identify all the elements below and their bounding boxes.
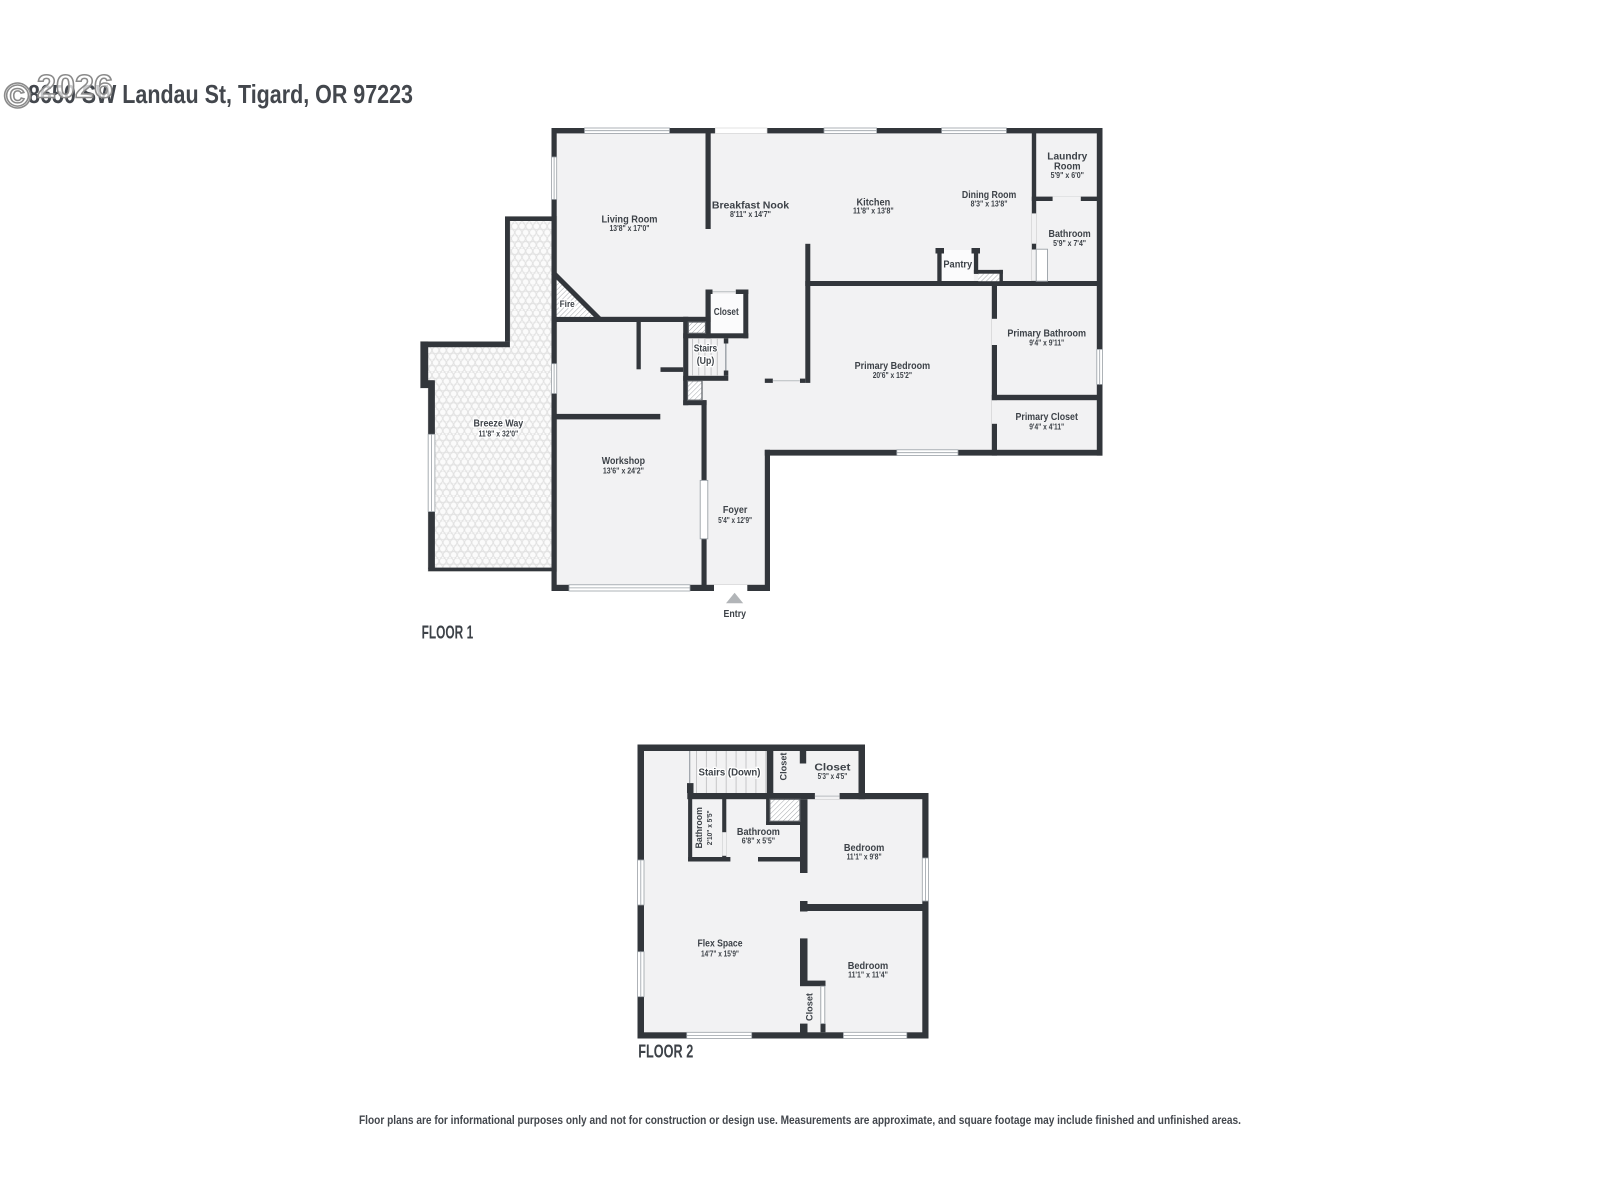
svg-text:2'10" x 5'5": 2'10" x 5'5" [705, 810, 714, 845]
svg-text:6'8" x 5'5": 6'8" x 5'5" [742, 837, 775, 846]
svg-text:FLOOR 1: FLOOR 1 [422, 623, 474, 643]
svg-text:Entry: Entry [724, 609, 747, 620]
svg-text:Breeze Way: Breeze Way [474, 419, 524, 430]
svg-text:FLOOR 2: FLOOR 2 [638, 1042, 693, 1062]
svg-text:Pantry: Pantry [943, 259, 972, 270]
svg-text:11'1" x 11'4": 11'1" x 11'4" [848, 971, 888, 980]
svg-text:©: © [4, 77, 31, 116]
svg-text:5'9" x 6'0": 5'9" x 6'0" [1051, 171, 1085, 180]
svg-text:14'7" x 15'9": 14'7" x 15'9" [701, 950, 739, 959]
svg-text:20'6" x 15'2": 20'6" x 15'2" [873, 371, 913, 380]
svg-text:Stairs (Down): Stairs (Down) [699, 768, 761, 779]
svg-text:(Up): (Up) [697, 356, 715, 367]
svg-text:Bathroom: Bathroom [694, 807, 704, 848]
svg-text:2026: 2026 [37, 69, 113, 105]
svg-text:Stairs: Stairs [694, 344, 718, 355]
svg-text:Foyer: Foyer [723, 505, 748, 516]
svg-text:11'1" x 9'8": 11'1" x 9'8" [847, 853, 882, 862]
svg-text:5'9" x 7'4": 5'9" x 7'4" [1053, 239, 1086, 248]
svg-text:13'6" x 24'2": 13'6" x 24'2" [603, 467, 644, 476]
svg-text:Closet: Closet [779, 752, 790, 781]
svg-text:9'4" x 9'11": 9'4" x 9'11" [1029, 338, 1064, 347]
svg-text:5'4" x 12'9": 5'4" x 12'9" [718, 516, 752, 525]
svg-text:Flex Space: Flex Space [698, 939, 743, 950]
svg-text:Closet: Closet [805, 992, 816, 1021]
svg-text:Workshop: Workshop [602, 456, 645, 467]
svg-text:5'3" x 4'5": 5'3" x 4'5" [818, 772, 848, 781]
svg-text:9'4" x 4'11": 9'4" x 4'11" [1029, 422, 1064, 431]
svg-text:13'8" x 17'0": 13'8" x 17'0" [610, 224, 650, 233]
svg-text:8'3" x 13'8": 8'3" x 13'8" [971, 199, 1008, 208]
svg-text:Closet: Closet [714, 307, 739, 318]
svg-text:11'8" x 32'0": 11'8" x 32'0" [479, 430, 519, 439]
svg-text:8'11" x 14'7": 8'11" x 14'7" [730, 210, 771, 219]
svg-text:11'8" x 13'8": 11'8" x 13'8" [853, 206, 894, 215]
svg-text:Floor plans are for informatio: Floor plans are for informational purpos… [359, 1115, 1241, 1127]
svg-text:Fire: Fire [560, 299, 575, 309]
